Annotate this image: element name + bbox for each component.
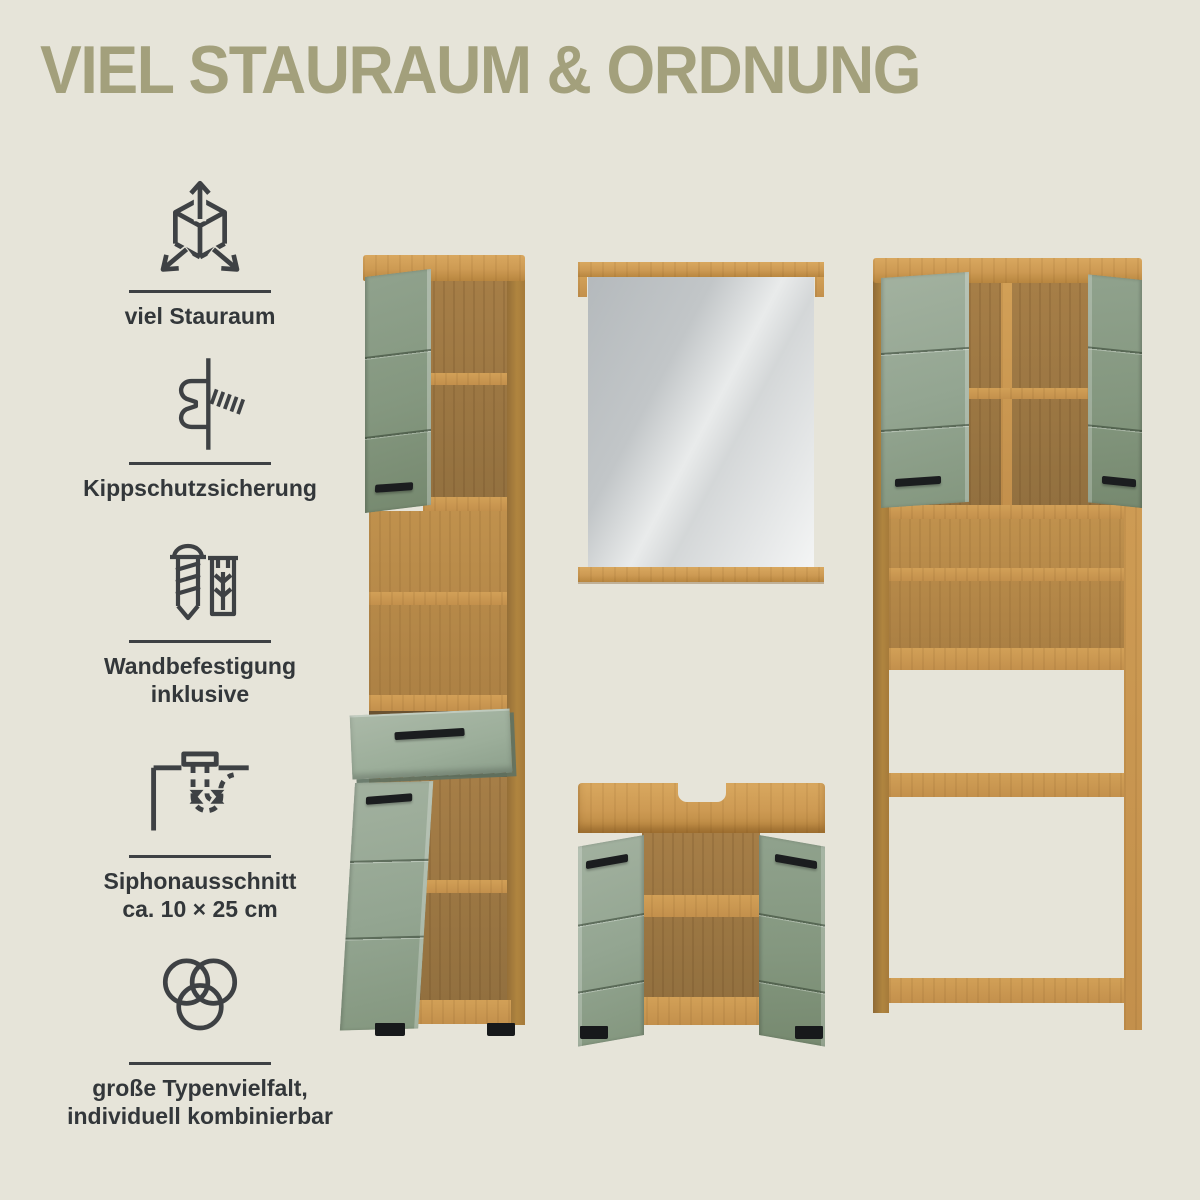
sink-cabinet-shelf [640, 895, 762, 917]
venn-circles-icon [50, 944, 350, 1056]
anti-tip-lock-icon [50, 352, 350, 456]
washer-cabinet-board [889, 648, 1124, 670]
door-handle [775, 854, 817, 869]
feature-anti-tip: Kippschutzsicherung [50, 352, 350, 503]
tall-cabinet-lower-door [340, 781, 433, 1031]
siphon-cutout [678, 783, 726, 802]
door-groove [578, 913, 644, 928]
feature-label-line: Kippschutzsicherung [50, 475, 350, 503]
tall-cabinet-upper-interior [423, 279, 507, 511]
door-handle [586, 854, 628, 869]
tall-cabinet-shelf [423, 373, 507, 385]
sink-cabinet-right-door [759, 835, 825, 1047]
door-handle [895, 476, 941, 487]
mirror-top-strip [578, 262, 824, 277]
washer-cabinet-rail [889, 505, 1124, 519]
washer-cabinet-niche [889, 519, 1124, 648]
cabinet-foot [375, 1023, 405, 1036]
sink-cabinet-left-door [578, 835, 644, 1047]
sink-cabinet-interior [642, 833, 760, 1001]
feature-label: große Typenvielfalt, individuell kombini… [50, 1075, 350, 1130]
door-groove [759, 913, 825, 928]
screw-dowel-icon [50, 534, 350, 634]
feature-variety: große Typenvielfalt, individuell kombini… [50, 944, 350, 1130]
tall-cabinet-side-panel [505, 273, 525, 1025]
feature-label: Wandbefestigung inklusive [50, 653, 350, 708]
washer-cabinet-right-door [1088, 274, 1142, 508]
washer-cabinet-crossbar [889, 978, 1124, 1003]
feature-label: viel Stauraum [50, 303, 350, 331]
door-groove [365, 349, 431, 360]
cube-arrows-icon [50, 172, 350, 284]
door-handle [1102, 476, 1136, 488]
feature-label-line: ca. 10 × 25 cm [50, 896, 350, 924]
siphon-cutout-icon [50, 733, 350, 849]
tall-cabinet-drawer [350, 709, 513, 780]
tall-cabinet-middle-interior [369, 511, 507, 711]
page-title: VIEL STAURAUM & ORDNUNG [40, 36, 920, 104]
mirror-side-tab [578, 277, 587, 297]
feature-wall-mount: Wandbefestigung inklusive [50, 534, 350, 708]
feature-label-line: individuell kombinierbar [50, 1103, 350, 1131]
mirror-shelf [578, 567, 824, 582]
divider [129, 462, 271, 465]
door-groove [881, 347, 969, 356]
feature-label-line: inklusive [50, 681, 350, 709]
washer-cabinet-left-door [881, 272, 969, 508]
feature-label-line: Siphonausschnitt [50, 868, 350, 896]
door-groove [881, 424, 969, 433]
door-groove [350, 859, 428, 864]
door-handle [366, 793, 412, 805]
tall-cabinet [363, 255, 525, 1045]
tall-cabinet-shelf [369, 592, 507, 605]
door-groove [1088, 346, 1142, 355]
divider [129, 855, 271, 858]
divider [129, 290, 271, 293]
washer-cabinet-crossbar [889, 773, 1124, 797]
door-groove [1088, 424, 1142, 433]
door-handle [375, 482, 413, 493]
sink-base-cabinet [578, 783, 825, 1041]
feature-label-line: große Typenvielfalt, [50, 1075, 350, 1103]
door-groove [578, 980, 644, 995]
cabinet-foot [580, 1026, 608, 1039]
feature-siphon-cutout: Siphonausschnitt ca. 10 × 25 cm [50, 733, 350, 923]
drawer-handle [394, 728, 464, 740]
feature-storage: viel Stauraum [50, 172, 350, 331]
tall-cabinet-shelf [423, 497, 507, 511]
feature-label: Kippschutzsicherung [50, 475, 350, 503]
feature-label-line: viel Stauraum [50, 303, 350, 331]
door-groove [365, 429, 431, 440]
wall-mirror [578, 262, 824, 582]
tall-cabinet-upper-door [365, 269, 431, 513]
door-groove [759, 980, 825, 995]
mirror-glass [588, 268, 814, 568]
cabinet-foot [487, 1023, 515, 1036]
washer-cabinet-shelf [889, 568, 1124, 581]
divider [129, 1062, 271, 1065]
product-infographic: VIEL STAURAUM & ORDNUNG viel Stauraum [0, 0, 1200, 1200]
mirror-side-tab [815, 277, 824, 297]
feature-label: Siphonausschnitt ca. 10 × 25 cm [50, 868, 350, 923]
washer-surround-cabinet [873, 258, 1142, 1030]
door-groove [345, 936, 423, 941]
cabinet-foot [795, 1026, 823, 1039]
feature-label-line: Wandbefestigung [50, 653, 350, 681]
divider [129, 640, 271, 643]
